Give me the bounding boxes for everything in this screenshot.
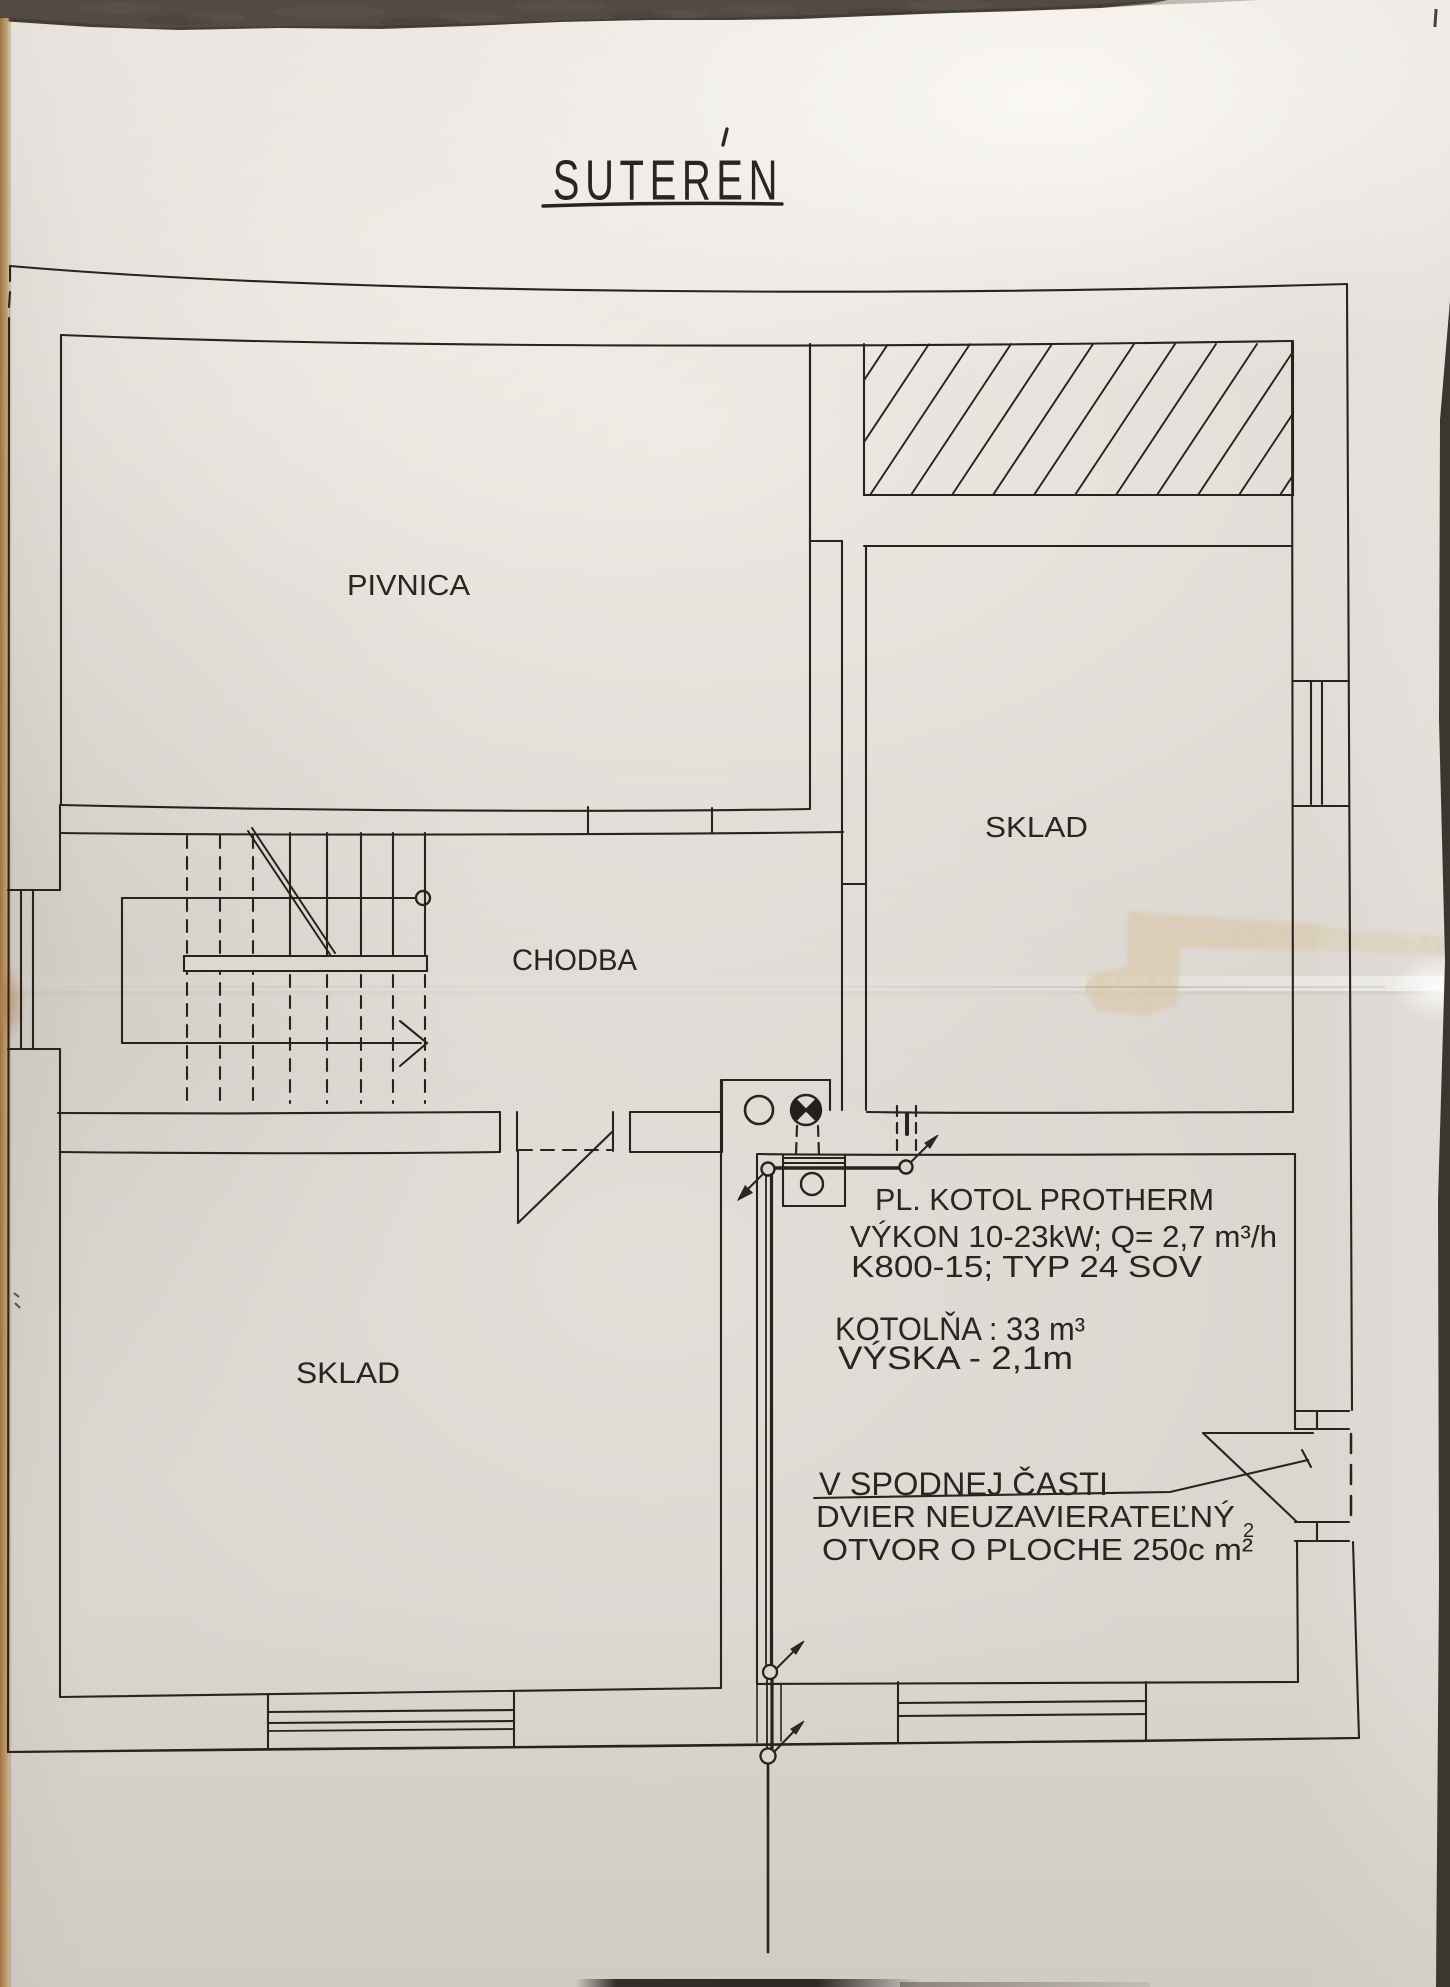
svg-text:SKLAD: SKLAD <box>985 812 1088 844</box>
svg-text:SKLAD: SKLAD <box>296 1357 400 1390</box>
svg-text:OTVOR O PLOCHE 250c m²: OTVOR O PLOCHE 250c m² <box>822 1532 1253 1567</box>
svg-text:PL. KOTOL PROTHERM: PL. KOTOL PROTHERM <box>875 1182 1214 1217</box>
svg-text:VÝSKA - 2,1m: VÝSKA - 2,1m <box>838 1340 1073 1376</box>
svg-text:CHODBA: CHODBA <box>512 944 637 977</box>
svg-text:DVIER NEUZAVIERATEĽNÝ: DVIER NEUZAVIERATEĽNÝ <box>816 1499 1235 1534</box>
svg-text:PIVNICA: PIVNICA <box>347 570 471 602</box>
svg-text:V SPODNEJ ČASTI: V SPODNEJ ČASTI <box>819 1466 1108 1502</box>
svg-text:K800-15; TYP 24 SOV: K800-15; TYP 24 SOV <box>851 1249 1202 1284</box>
